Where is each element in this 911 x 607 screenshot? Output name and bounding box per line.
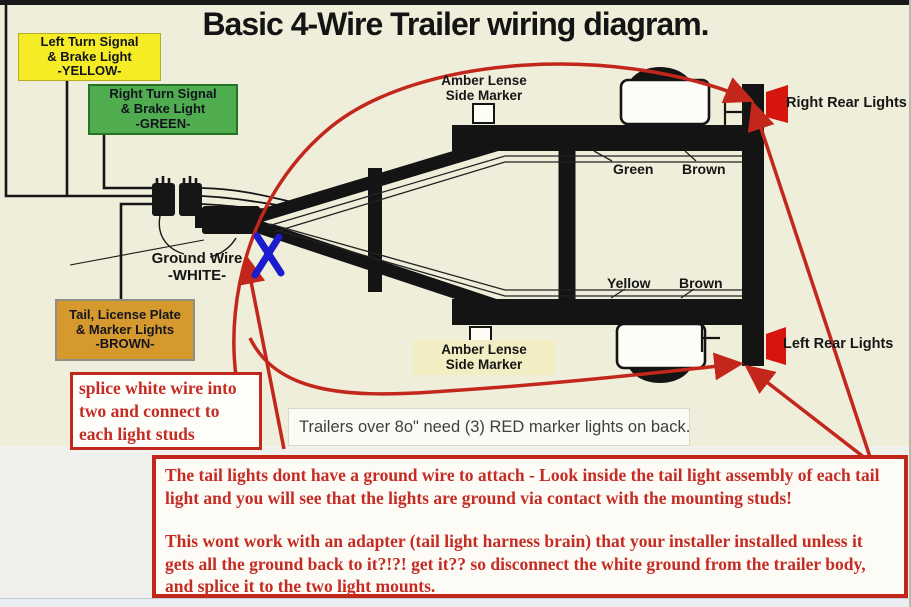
wiring-diagram-page: Basic 4-Wire Trailer wiring diagram. Lef…: [0, 0, 911, 607]
callout-line: -YELLOW-: [19, 64, 160, 79]
label-left-rear-lights: Left Rear Lights: [783, 336, 903, 352]
label-line: Amber Lense: [413, 342, 555, 357]
label-amber-marker-top: Amber Lense Side Marker: [423, 73, 545, 103]
label-line: Side Marker: [423, 88, 545, 103]
right-rear-light: [766, 85, 788, 123]
callout-tail-brown: Tail, License Plate & Marker Lights -BRO…: [55, 299, 195, 361]
callout-line: Tail, License Plate: [57, 308, 193, 323]
splice-note-line: splice white wire into: [79, 377, 255, 400]
wire-tag-green-top: Green: [613, 161, 653, 177]
frame-wire-runs: [268, 151, 742, 298]
wire-tag-brown-bottom: Brown: [679, 275, 723, 291]
ground-note-paragraph-1: The tail lights dont have a ground wire …: [165, 464, 895, 509]
tongue-top-arm: [256, 140, 512, 217]
callout-line: & Marker Lights: [57, 323, 193, 338]
callout-line: & Brake Light: [19, 50, 160, 65]
ground-explanation-note: The tail lights dont have a ground wire …: [152, 455, 908, 598]
red-annotations: [234, 64, 874, 465]
coupler: [202, 206, 260, 234]
callout-right-turn-green: Right Turn Signal & Brake Light -GREEN-: [88, 84, 238, 135]
blue-x-mark: [255, 236, 281, 275]
callout-line: Left Turn Signal: [19, 35, 160, 50]
connector-plugs: [152, 176, 202, 216]
label-line: Side Marker: [413, 357, 555, 372]
label-amber-marker-bottom: Amber Lense Side Marker: [413, 340, 555, 375]
wheels-and-fenders: [617, 67, 709, 383]
callout-line: -GREEN-: [90, 117, 236, 132]
callout-line: -BROWN-: [57, 337, 193, 352]
wire-tag-brown-top: Brown: [682, 161, 726, 177]
top-fender: [621, 80, 709, 124]
splice-note-line: each light studs: [79, 423, 255, 446]
callout-line: Right Turn Signal: [90, 87, 236, 102]
marker-lights-note: Trailers over 8o" need (3) RED marker li…: [288, 408, 690, 446]
splice-note: splice white wire into two and connect t…: [70, 372, 262, 450]
label-line: -WHITE-: [138, 268, 256, 285]
label-line: Amber Lense: [423, 73, 545, 88]
tongue-bottom-arm: [256, 226, 512, 311]
label-right-rear-lights: Right Rear Lights: [786, 95, 911, 111]
callout-line: & Brake Light: [90, 102, 236, 117]
ground-note-paragraph-2: This wont work with an adapter (tail lig…: [165, 530, 895, 598]
splice-note-line: two and connect to: [79, 400, 255, 423]
label-ground-wire: Ground Wire -WHITE-: [138, 251, 256, 285]
amber-marker-top: [473, 104, 494, 123]
red-arrow-upper: [754, 107, 872, 463]
label-line: Ground Wire: [138, 251, 256, 268]
coupler-nub: [195, 212, 204, 228]
bottom-fender: [617, 324, 705, 368]
wire-tag-yellow-bottom: Yellow: [607, 275, 651, 291]
callout-left-turn-yellow: Left Turn Signal & Brake Light -YELLOW-: [18, 33, 161, 81]
